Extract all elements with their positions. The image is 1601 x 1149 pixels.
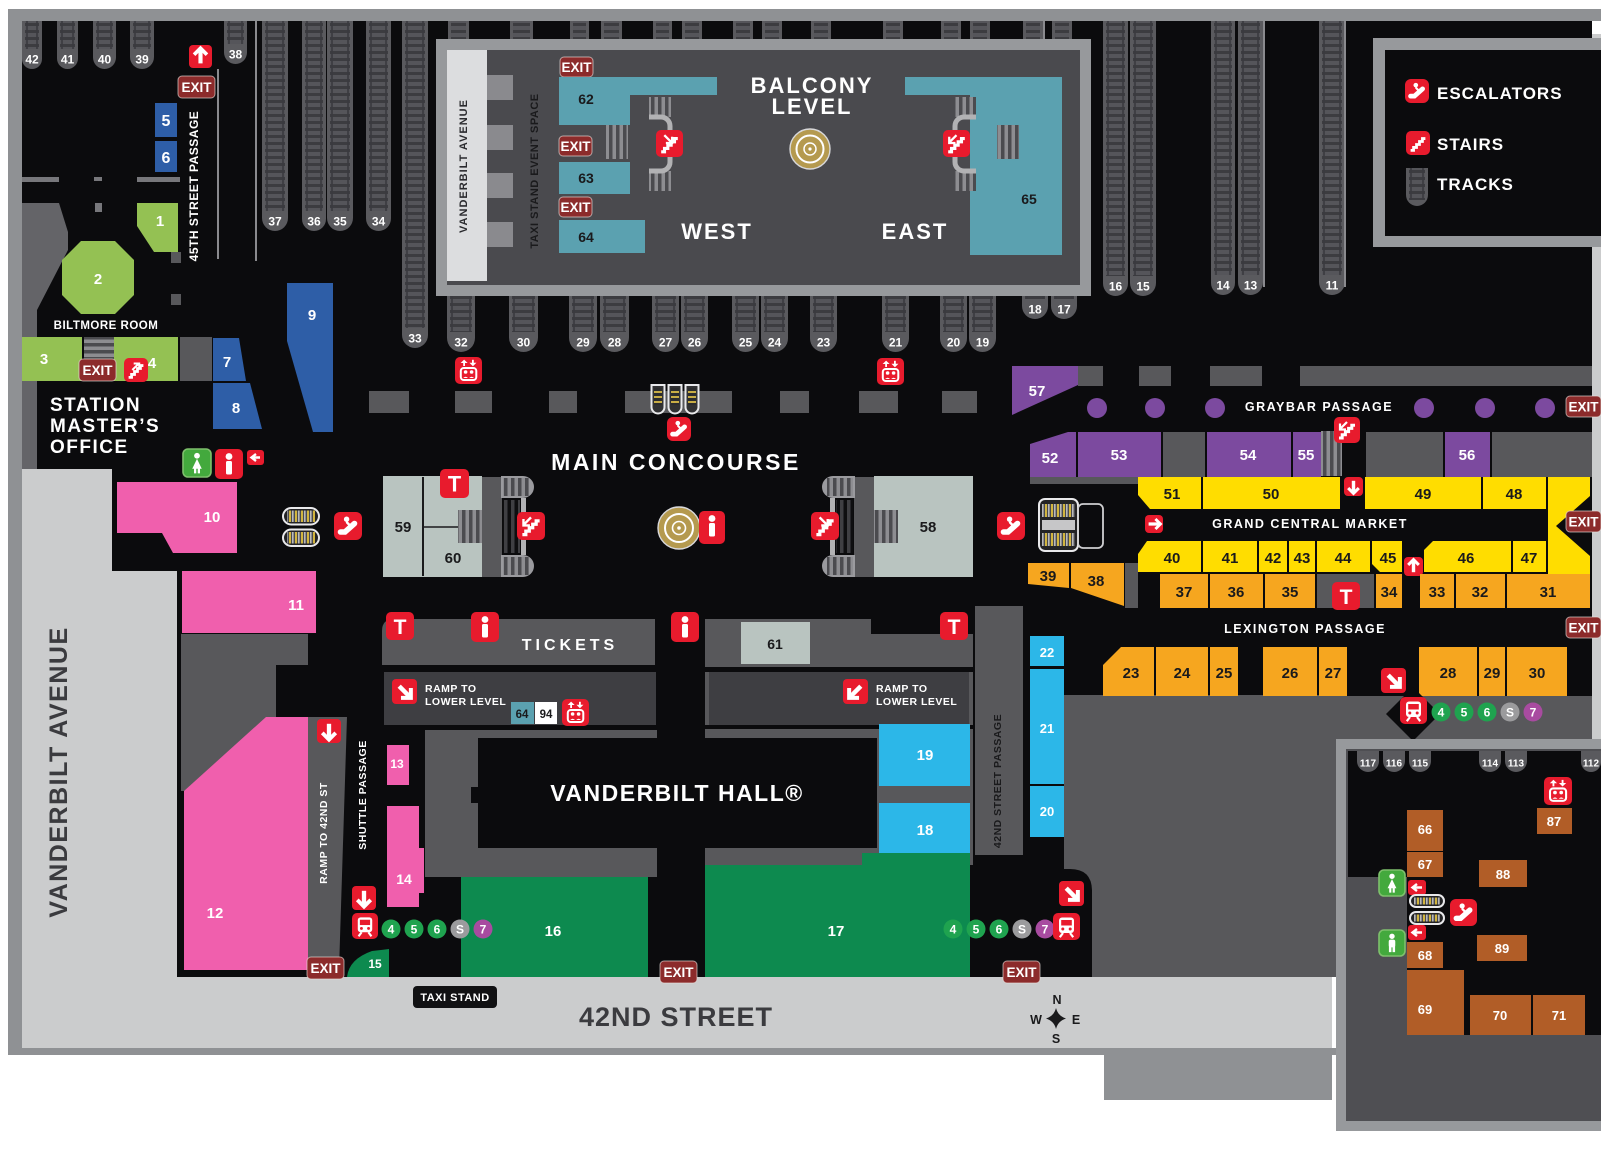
svg-text:S: S [456, 922, 464, 936]
svg-text:12: 12 [207, 905, 224, 922]
svg-text:VANDERBILT HALL®: VANDERBILT HALL® [550, 780, 803, 806]
svg-text:S: S [1018, 922, 1026, 936]
svg-text:7: 7 [480, 922, 487, 936]
svg-text:11: 11 [288, 597, 304, 614]
svg-text:36: 36 [1228, 584, 1245, 601]
svg-text:115: 115 [1412, 759, 1429, 770]
svg-text:64: 64 [516, 709, 529, 721]
svg-text:87: 87 [1547, 814, 1561, 829]
svg-text:11: 11 [1326, 279, 1339, 293]
svg-text:RAMP TO: RAMP TO [425, 683, 477, 695]
svg-text:14: 14 [396, 871, 412, 887]
svg-text:13: 13 [390, 757, 404, 771]
svg-text:61: 61 [767, 636, 783, 652]
svg-text:18: 18 [1028, 303, 1042, 317]
svg-text:22: 22 [1040, 645, 1054, 660]
svg-text:117: 117 [1360, 759, 1377, 770]
svg-text:50: 50 [1263, 486, 1280, 503]
svg-text:EAST: EAST [882, 219, 949, 244]
svg-text:55: 55 [1298, 447, 1315, 464]
svg-text:LOWER LEVEL: LOWER LEVEL [425, 696, 506, 708]
svg-text:60: 60 [445, 550, 462, 567]
svg-text:5: 5 [162, 113, 171, 130]
svg-text:52: 52 [1042, 450, 1059, 467]
svg-text:20: 20 [947, 336, 961, 350]
svg-text:113: 113 [1508, 759, 1525, 770]
svg-text:MASTER’S: MASTER’S [50, 416, 160, 437]
svg-text:41: 41 [1222, 550, 1239, 567]
svg-text:63: 63 [578, 170, 594, 186]
svg-text:88: 88 [1496, 867, 1510, 882]
svg-text:26: 26 [1282, 665, 1299, 682]
svg-text:VANDERBILT AVENUE: VANDERBILT AVENUE [458, 99, 470, 233]
svg-text:9: 9 [308, 307, 316, 324]
svg-text:38: 38 [1088, 573, 1105, 590]
svg-text:45: 45 [1380, 550, 1397, 567]
svg-text:SHUTTLE PASSAGE: SHUTTLE PASSAGE [357, 740, 369, 849]
svg-text:EXIT: EXIT [1568, 399, 1599, 414]
svg-text:N: N [1052, 993, 1061, 1007]
svg-text:58: 58 [920, 519, 937, 536]
svg-text:13: 13 [1244, 279, 1258, 293]
svg-text:EXIT: EXIT [1568, 514, 1599, 529]
svg-text:28: 28 [608, 336, 622, 350]
svg-text:27: 27 [659, 336, 673, 350]
svg-text:59: 59 [395, 519, 412, 536]
svg-text:EXIT: EXIT [1006, 965, 1037, 980]
svg-text:31: 31 [1540, 584, 1557, 601]
svg-text:TAXI STAND: TAXI STAND [420, 992, 489, 1004]
svg-text:27: 27 [1325, 665, 1342, 682]
svg-text:28: 28 [1440, 665, 1457, 682]
svg-text:5: 5 [973, 922, 980, 936]
svg-text:66: 66 [1418, 822, 1432, 837]
svg-text:42: 42 [25, 53, 39, 67]
svg-text:20: 20 [1040, 804, 1054, 819]
svg-text:RAMP TO 42ND ST: RAMP TO 42ND ST [318, 782, 330, 884]
svg-text:26: 26 [688, 336, 702, 350]
svg-text:68: 68 [1418, 948, 1432, 963]
svg-text:116: 116 [1386, 759, 1403, 770]
svg-text:24: 24 [768, 336, 782, 350]
svg-text:29: 29 [1484, 665, 1501, 682]
svg-text:32: 32 [1472, 584, 1489, 601]
svg-text:35: 35 [333, 215, 347, 229]
svg-text:43: 43 [1294, 550, 1311, 567]
svg-text:65: 65 [1021, 191, 1037, 207]
svg-text:EXIT: EXIT [1568, 620, 1599, 635]
svg-text:4: 4 [148, 355, 157, 372]
svg-text:LEVEL: LEVEL [772, 94, 853, 119]
svg-text:16: 16 [545, 923, 562, 940]
svg-text:T: T [948, 616, 961, 639]
svg-text:35: 35 [1282, 584, 1299, 601]
svg-text:37: 37 [1176, 584, 1193, 601]
svg-text:39: 39 [1040, 568, 1057, 585]
svg-text:21: 21 [1040, 721, 1054, 736]
svg-text:64: 64 [578, 229, 594, 245]
svg-text:33: 33 [1429, 584, 1446, 601]
svg-text:62: 62 [578, 91, 594, 107]
svg-text:EXIT: EXIT [560, 200, 591, 215]
svg-text:6: 6 [162, 150, 171, 167]
svg-text:6: 6 [434, 922, 441, 936]
svg-text:36: 36 [307, 215, 321, 229]
svg-text:70: 70 [1493, 1008, 1507, 1023]
svg-text:6: 6 [996, 922, 1003, 936]
svg-text:4: 4 [950, 922, 957, 936]
svg-text:114: 114 [1482, 759, 1499, 770]
svg-text:24: 24 [1174, 665, 1191, 682]
svg-text:5: 5 [1461, 705, 1468, 719]
svg-text:15: 15 [368, 957, 382, 971]
svg-text:21: 21 [889, 336, 903, 350]
svg-text:EXIT: EXIT [181, 80, 212, 95]
svg-text:WEST: WEST [681, 219, 753, 244]
svg-text:47: 47 [1521, 550, 1538, 567]
svg-text:W: W [1030, 1013, 1042, 1027]
svg-text:23: 23 [817, 336, 831, 350]
svg-text:19: 19 [917, 747, 934, 764]
svg-text:112: 112 [1583, 759, 1600, 770]
svg-text:3: 3 [40, 351, 48, 368]
svg-text:5: 5 [411, 922, 418, 936]
svg-text:EXIT: EXIT [663, 965, 694, 980]
svg-text:16: 16 [1109, 280, 1123, 294]
svg-text:46: 46 [1458, 550, 1475, 567]
svg-text:T: T [448, 472, 462, 497]
svg-text:BILTMORE ROOM: BILTMORE ROOM [54, 320, 159, 332]
svg-text:14: 14 [1216, 279, 1230, 293]
svg-text:4: 4 [1438, 705, 1445, 719]
svg-text:MAIN CONCOURSE: MAIN CONCOURSE [551, 449, 801, 475]
svg-text:33: 33 [408, 332, 422, 346]
svg-text:53: 53 [1111, 447, 1128, 464]
svg-text:1: 1 [156, 213, 164, 230]
svg-text:45TH STREET PASSAGE: 45TH STREET PASSAGE [187, 111, 201, 262]
svg-text:25: 25 [1216, 665, 1233, 682]
svg-text:44: 44 [1335, 550, 1352, 567]
svg-text:34: 34 [1381, 584, 1398, 601]
svg-text:TAXI STAND EVENT SPACE: TAXI STAND EVENT SPACE [529, 93, 541, 248]
svg-text:LOWER LEVEL: LOWER LEVEL [876, 696, 957, 708]
svg-text:4: 4 [388, 922, 395, 936]
svg-text:29: 29 [576, 336, 590, 350]
svg-text:25: 25 [739, 336, 753, 350]
svg-text:51: 51 [1164, 486, 1181, 503]
svg-text:19: 19 [976, 336, 990, 350]
svg-text:8: 8 [232, 400, 240, 417]
svg-text:ESCALATORS: ESCALATORS [1437, 84, 1563, 103]
svg-text:42ND STREET: 42ND STREET [579, 1002, 773, 1032]
svg-text:T: T [394, 616, 407, 639]
svg-text:S: S [1052, 1032, 1060, 1046]
svg-text:TRACKS: TRACKS [1437, 175, 1514, 194]
svg-text:10: 10 [204, 509, 221, 526]
svg-text:94: 94 [540, 709, 553, 721]
svg-text:E: E [1072, 1013, 1080, 1027]
svg-text:EXIT: EXIT [310, 961, 341, 976]
svg-text:7: 7 [1042, 922, 1049, 936]
svg-text:37: 37 [268, 215, 282, 229]
svg-text:EXIT: EXIT [560, 139, 591, 154]
svg-text:17: 17 [1057, 303, 1071, 317]
svg-text:34: 34 [372, 215, 386, 229]
svg-text:40: 40 [1164, 550, 1181, 567]
svg-text:15: 15 [1136, 280, 1150, 294]
svg-text:GRAND CENTRAL MARKET: GRAND CENTRAL MARKET [1212, 517, 1408, 531]
svg-text:56: 56 [1459, 447, 1476, 464]
svg-text:69: 69 [1418, 1002, 1432, 1017]
svg-text:30: 30 [517, 336, 531, 350]
svg-text:S: S [1506, 705, 1514, 719]
svg-text:7: 7 [223, 354, 231, 371]
svg-text:TICKETS: TICKETS [522, 637, 618, 654]
svg-text:49: 49 [1415, 486, 1432, 503]
svg-text:2: 2 [94, 271, 102, 288]
svg-text:STATION: STATION [50, 395, 141, 416]
svg-text:VANDERBILT AVENUE: VANDERBILT AVENUE [45, 626, 73, 917]
svg-text:42ND STREET PASSAGE: 42ND STREET PASSAGE [992, 714, 1004, 848]
svg-text:23: 23 [1123, 665, 1140, 682]
svg-text:EXIT: EXIT [82, 363, 113, 378]
svg-text:17: 17 [828, 923, 845, 940]
svg-text:RAMP TO: RAMP TO [876, 683, 928, 695]
svg-text:EXIT: EXIT [561, 60, 592, 75]
svg-text:54: 54 [1240, 447, 1257, 464]
svg-text:89: 89 [1495, 941, 1509, 956]
svg-text:6: 6 [1484, 705, 1491, 719]
svg-text:38: 38 [229, 48, 243, 62]
svg-text:18: 18 [917, 822, 934, 839]
svg-text:7: 7 [1530, 705, 1537, 719]
svg-text:41: 41 [61, 53, 75, 67]
svg-text:30: 30 [1529, 665, 1546, 682]
svg-text:48: 48 [1506, 486, 1523, 503]
svg-text:LEXINGTON PASSAGE: LEXINGTON PASSAGE [1224, 622, 1386, 636]
svg-text:39: 39 [135, 53, 149, 67]
svg-text:32: 32 [454, 336, 468, 350]
svg-text:67: 67 [1418, 857, 1432, 872]
svg-text:57: 57 [1029, 383, 1046, 400]
svg-text:OFFICE: OFFICE [50, 437, 129, 458]
svg-text:STAIRS: STAIRS [1437, 135, 1504, 154]
svg-text:T: T [1340, 586, 1353, 609]
svg-text:40: 40 [98, 53, 112, 67]
svg-text:GRAYBAR PASSAGE: GRAYBAR PASSAGE [1245, 400, 1393, 414]
svg-text:71: 71 [1552, 1008, 1566, 1023]
svg-text:42: 42 [1265, 550, 1282, 567]
